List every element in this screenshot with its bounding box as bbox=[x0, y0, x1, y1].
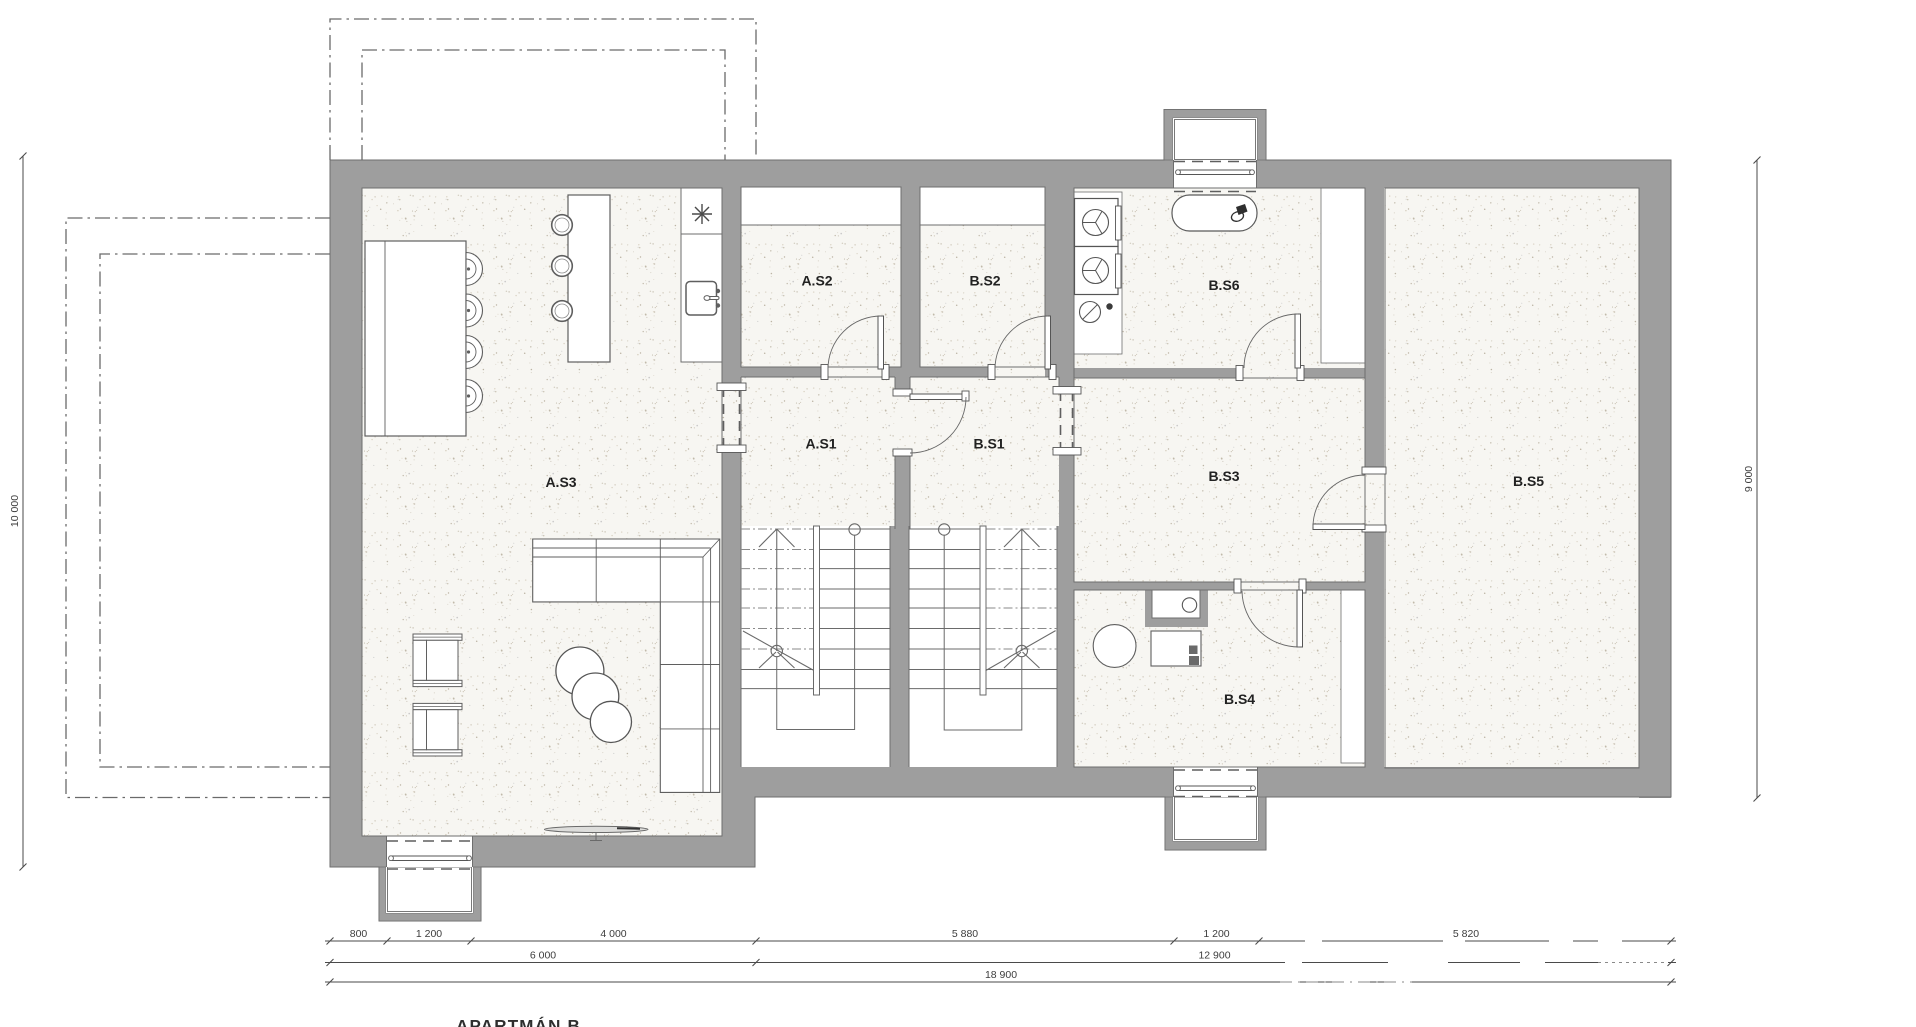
svg-text:B.S3: B.S3 bbox=[1208, 468, 1239, 484]
svg-text:A.S1: A.S1 bbox=[805, 436, 836, 452]
svg-text:B.S5: B.S5 bbox=[1513, 473, 1544, 489]
svg-text:A.S3: A.S3 bbox=[545, 474, 576, 490]
svg-text:1 200: 1 200 bbox=[416, 928, 442, 940]
svg-text:5 820: 5 820 bbox=[1453, 928, 1479, 940]
svg-text:4 000: 4 000 bbox=[600, 928, 626, 940]
svg-text:B.S4: B.S4 bbox=[1224, 691, 1255, 707]
svg-text:12 900: 12 900 bbox=[1198, 950, 1230, 962]
svg-text:800: 800 bbox=[350, 928, 368, 940]
svg-text:6 000: 6 000 bbox=[530, 950, 556, 962]
svg-text:A.S2: A.S2 bbox=[801, 273, 832, 289]
svg-text:5 880: 5 880 bbox=[952, 928, 978, 940]
svg-text:APARTMÁN B: APARTMÁN B bbox=[456, 1017, 581, 1027]
svg-text:B.S1: B.S1 bbox=[973, 436, 1004, 452]
svg-text:9 000: 9 000 bbox=[1743, 466, 1755, 492]
svg-text:10 000: 10 000 bbox=[9, 495, 21, 527]
svg-text:1 200: 1 200 bbox=[1203, 928, 1229, 940]
svg-text:B.S6: B.S6 bbox=[1208, 277, 1239, 293]
svg-text:B.S2: B.S2 bbox=[969, 273, 1000, 289]
svg-text:18 900: 18 900 bbox=[985, 969, 1017, 981]
